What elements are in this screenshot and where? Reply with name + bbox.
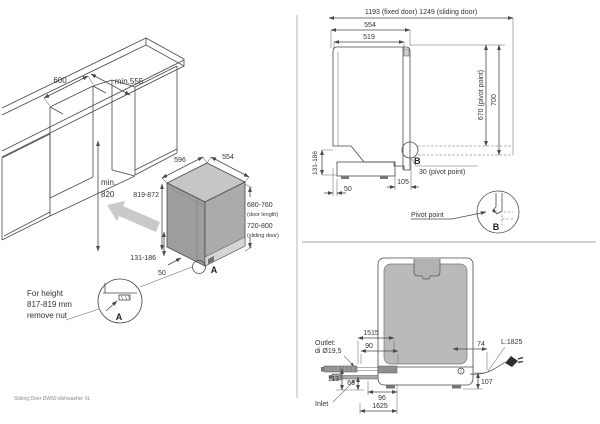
dim-50-iso: 50 xyxy=(158,270,166,277)
counter-cabinets-outline xyxy=(2,38,184,240)
note-line-1: For height xyxy=(27,289,64,298)
ext-519 xyxy=(334,42,404,49)
dim-670: 670 (pivot point) xyxy=(478,70,485,120)
rear-view: L:1825 1515 90 74 107 113 66 96 1625 Out… xyxy=(315,258,523,414)
dim-min555: min.555 xyxy=(115,77,144,86)
dim-600: 600 xyxy=(53,76,67,85)
inlet-leader xyxy=(333,380,355,402)
side-foot-left xyxy=(341,176,349,179)
dim-113: 113 xyxy=(328,376,339,383)
ext-131-186 xyxy=(322,150,337,175)
plug-prongs xyxy=(518,358,523,363)
diagram-canvas: 600 min.555 min. 820 596 554 819-872 xyxy=(0,0,600,424)
detail-a-label: A xyxy=(116,312,123,322)
detail-b-content xyxy=(493,193,515,225)
dim-90: 90 xyxy=(365,343,373,350)
outlet-hose xyxy=(321,366,397,373)
rear-foot-left xyxy=(386,385,395,389)
dishwasher-unit xyxy=(167,163,245,266)
installation-diagram: 600 min.555 min. 820 596 554 819-872 xyxy=(0,0,600,424)
dim-30: 30 (pivot point) xyxy=(419,169,465,176)
note-line-3: remove nut xyxy=(27,311,68,320)
inlet-label: Inlet xyxy=(315,401,328,408)
dim-680-760: 680-760 xyxy=(247,202,273,209)
dim-105: 105 xyxy=(397,179,409,186)
rear-top-notch xyxy=(414,259,440,279)
footer-caption: Sliding Door DW60 dishwasher XL xyxy=(14,396,91,402)
plug-icon xyxy=(505,356,518,367)
pivot-point-leader xyxy=(452,212,486,219)
power-cord xyxy=(470,362,505,374)
dim-720-800: 720-800 xyxy=(247,223,273,230)
dim-131-186-iso: 131-186 xyxy=(130,255,156,262)
dim-min-label: min. xyxy=(101,178,116,187)
dim-total: 1193 (fixed door) 1249 (sliding door) xyxy=(365,9,477,16)
detail-a-leader xyxy=(140,267,192,287)
side-body xyxy=(333,47,410,170)
slide-direction-arrow xyxy=(107,201,160,232)
dim-819-872: 819-872 xyxy=(133,192,159,199)
side-view: 1193 (fixed door) 1249 (sliding door) 55… xyxy=(302,9,596,242)
dim-sliding-door-note: (sliding door) xyxy=(247,233,279,239)
ext-50-side xyxy=(333,168,337,196)
dim-596: 596 xyxy=(174,157,186,164)
outlet-label-1: Outlet: xyxy=(315,340,336,347)
side-base xyxy=(337,162,395,176)
note-line-2: 817-819 mm xyxy=(27,300,72,309)
dim-50-side: 50 xyxy=(344,186,352,193)
dim-1515: 1515 xyxy=(363,330,379,337)
dim-554-side: 554 xyxy=(364,22,376,29)
detail-a-content xyxy=(103,283,137,311)
outlet-leader xyxy=(344,356,354,366)
dim-107: 107 xyxy=(481,379,493,386)
dim-820: 820 xyxy=(101,190,115,199)
dim-door-length-note: (door length) xyxy=(247,212,278,218)
leader-30 xyxy=(411,158,478,166)
dim-line-50-iso xyxy=(168,258,181,265)
dim-700: 700 xyxy=(491,94,498,106)
note-leader xyxy=(66,309,99,320)
pivot-point-label: Pivot point xyxy=(411,212,444,219)
door-top-bracket xyxy=(404,49,409,56)
dim-519: 519 xyxy=(363,34,375,41)
marker-a-label: A xyxy=(211,265,218,275)
detail-b-label: B xyxy=(493,222,500,232)
outlet-label-2: di Ø19,5 xyxy=(315,348,342,355)
dim-74: 74 xyxy=(477,341,485,348)
dim-cord-length: L:1825 xyxy=(501,339,523,346)
side-foot-right xyxy=(380,176,388,179)
isometric-view: 600 min.555 min. 820 596 554 819-872 xyxy=(2,38,279,402)
dim-554-iso: 554 xyxy=(222,154,234,161)
rear-foot-right xyxy=(452,385,461,389)
dim-96: 96 xyxy=(378,395,386,402)
dim-131-186-side: 131-186 xyxy=(312,151,319,175)
dim-1625: 1625 xyxy=(372,403,388,410)
